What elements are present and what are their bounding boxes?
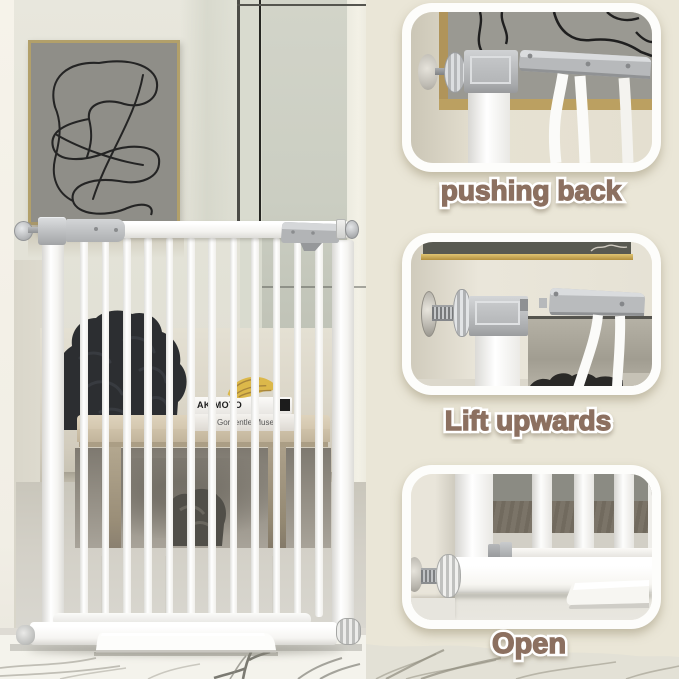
svg-text:Lift upwards: Lift upwards [445,405,611,436]
svg-text:pushing back: pushing back [441,175,622,206]
svg-text:Open: Open [492,628,566,660]
